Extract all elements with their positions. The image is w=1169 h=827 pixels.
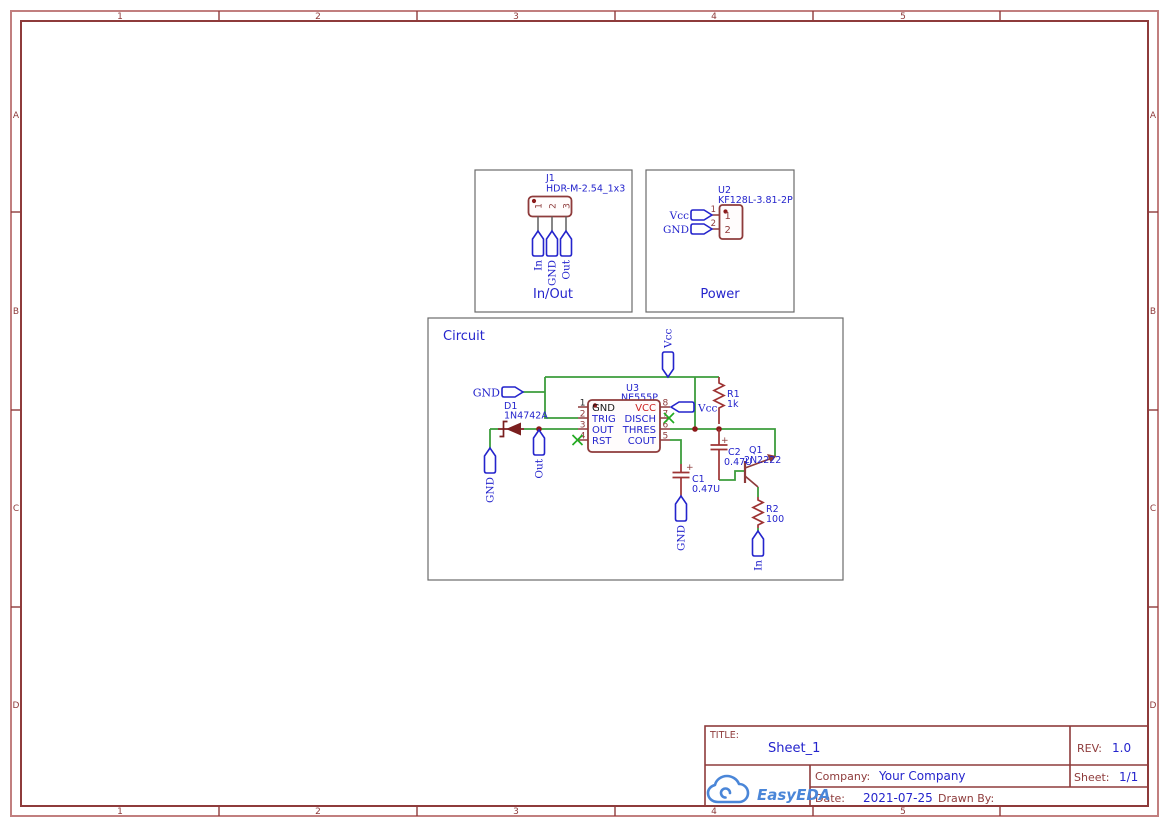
- easyeda-logo-icon: [708, 776, 748, 802]
- net-flag-gnd-left[interactable]: GND: [485, 448, 497, 503]
- easyeda-logo-text: EasyEDA: [757, 786, 830, 804]
- title-block: TITLE: Sheet_1 REV: 1.0 Company: Your Co…: [705, 726, 1148, 806]
- net-flag-gnd-u2[interactable]: GND: [663, 224, 712, 236]
- resistor-r1[interactable]: R1 1k: [714, 377, 740, 424]
- sheet-label: Sheet:: [1074, 771, 1110, 784]
- net-flag-out[interactable]: Out: [534, 430, 546, 479]
- net-flag-in[interactable]: In: [753, 531, 765, 571]
- u3-pin-number: 5: [663, 432, 669, 442]
- net-label-out[interactable]: Out: [561, 259, 573, 279]
- ruler-number: 2: [315, 12, 321, 22]
- net-label-gnd[interactable]: GND: [473, 387, 500, 400]
- net-label-gnd[interactable]: GND: [676, 525, 688, 551]
- net-label-gnd[interactable]: GND: [485, 477, 497, 503]
- ruler-number: 3: [513, 807, 519, 817]
- net-flag-gnd-top[interactable]: GND: [473, 387, 523, 400]
- ruler-number: 4: [711, 807, 717, 817]
- u3-pin-number: 8: [663, 399, 669, 409]
- u3-pin-name: OUT: [592, 425, 614, 436]
- ruler-number: 1: [117, 807, 123, 817]
- net-flag-gnd-j1[interactable]: GND: [547, 231, 559, 286]
- ic-u3-ne555p[interactable]: U3 NE555P 1 2 3 4 8 7 6 5 GND TRIG OUT R…: [578, 383, 670, 452]
- inout-section-label[interactable]: In/Out: [533, 287, 573, 302]
- ruler-letter: A: [1150, 111, 1157, 121]
- u3-pin-name: VCC: [635, 403, 656, 414]
- ruler-letter: D: [1150, 701, 1157, 711]
- connector-j1[interactable]: J1 HDR-M-2.54_1x3 1 2 3: [529, 173, 626, 231]
- net-label-vcc[interactable]: Vcc: [669, 210, 689, 222]
- ruler-letter: A: [13, 111, 20, 121]
- u3-pin-number: 1: [580, 399, 586, 409]
- rev-label: REV:: [1077, 742, 1102, 755]
- u2-pin-number: 1: [711, 205, 716, 215]
- ruler-number: 1: [117, 12, 123, 22]
- junction-dot: [692, 426, 698, 432]
- u3-pin-name: COUT: [628, 436, 657, 447]
- j1-pin1-dot: [532, 199, 536, 203]
- ruler-letter: B: [13, 307, 19, 317]
- c1-polarity-plus-icon: +: [686, 463, 694, 473]
- r2-value[interactable]: 100: [766, 514, 784, 525]
- sheet-title[interactable]: Sheet_1: [768, 741, 820, 756]
- u3-pin-number: 3: [580, 421, 586, 431]
- resistor-r2[interactable]: R2 100: [753, 497, 784, 528]
- net-label-gnd[interactable]: GND: [663, 224, 689, 236]
- schematic-canvas[interactable]: 1 2 3 4 5 1 2 3 4 5 A B C D A B C D In/O…: [0, 0, 1169, 827]
- u2-pin-number: 2: [711, 219, 716, 229]
- u2-pad-number: 2: [725, 225, 731, 236]
- net-label-out[interactable]: Out: [534, 458, 546, 478]
- company-value[interactable]: Your Company: [878, 769, 966, 783]
- u3-pin-name: DISCH: [625, 414, 657, 425]
- sheet-value[interactable]: 1/1: [1119, 770, 1138, 784]
- c2-polarity-plus-icon: +: [721, 436, 729, 446]
- j1-pin-number: 3: [563, 203, 573, 209]
- r1-value[interactable]: 1k: [727, 399, 739, 410]
- rev-value[interactable]: 1.0: [1112, 741, 1131, 755]
- capacitor-c1[interactable]: + C1 0.47U: [673, 463, 721, 496]
- net-flag-vcc-u2[interactable]: Vcc: [669, 210, 712, 222]
- d1-value[interactable]: 1N4742A: [504, 411, 548, 422]
- net-label-vcc[interactable]: Vcc: [663, 329, 675, 349]
- j1-footprint[interactable]: HDR-M-2.54_1x3: [546, 184, 625, 195]
- ruler-number: 4: [711, 12, 717, 22]
- net-flag-vcc-top[interactable]: Vcc: [663, 329, 675, 377]
- j1-pin-number: 1: [535, 203, 545, 209]
- terminal-u2[interactable]: U2 KF128L-3.81-2P 1 2 1 2: [711, 185, 793, 239]
- u2-pad-number: 1: [725, 211, 731, 222]
- net-label-in[interactable]: In: [753, 560, 765, 571]
- ruler-letter: D: [13, 701, 20, 711]
- net-label-vcc[interactable]: Vcc: [697, 403, 717, 415]
- net-flag-in-j1[interactable]: In: [533, 231, 545, 271]
- power-section-label[interactable]: Power: [700, 287, 740, 302]
- ruler-number: 3: [513, 12, 519, 22]
- u3-pin-name: THRES: [622, 425, 656, 436]
- net-flag-gnd-c1[interactable]: GND: [676, 496, 688, 551]
- company-label: Company:: [815, 770, 870, 783]
- net-flag-out-j1[interactable]: Out: [561, 231, 573, 280]
- q1-value[interactable]: 2N2222: [744, 455, 781, 466]
- ruler-number: 5: [900, 807, 906, 817]
- ruler-letter: C: [13, 504, 19, 514]
- net-label-in[interactable]: In: [533, 260, 545, 271]
- j1-refdes[interactable]: J1: [545, 173, 555, 184]
- u3-pin-number: 2: [580, 410, 586, 420]
- date-value[interactable]: 2021-07-25: [863, 791, 933, 805]
- ruler-number: 2: [315, 807, 321, 817]
- u3-pin-name: TRIG: [591, 414, 616, 425]
- circuit-section-label[interactable]: Circuit: [443, 329, 485, 344]
- net-label-gnd[interactable]: GND: [547, 260, 559, 286]
- title-label: TITLE:: [709, 730, 739, 741]
- u3-pin-name: RST: [592, 436, 612, 447]
- c1-value[interactable]: 0.47U: [692, 484, 720, 495]
- ruler-letter: C: [1150, 504, 1156, 514]
- drawn-by-label: Drawn By:: [938, 792, 994, 805]
- ruler-letter: B: [1150, 307, 1156, 317]
- ruler-number: 5: [900, 12, 906, 22]
- u3-pin-name: GND: [592, 403, 615, 414]
- j1-pin-number: 2: [549, 203, 559, 209]
